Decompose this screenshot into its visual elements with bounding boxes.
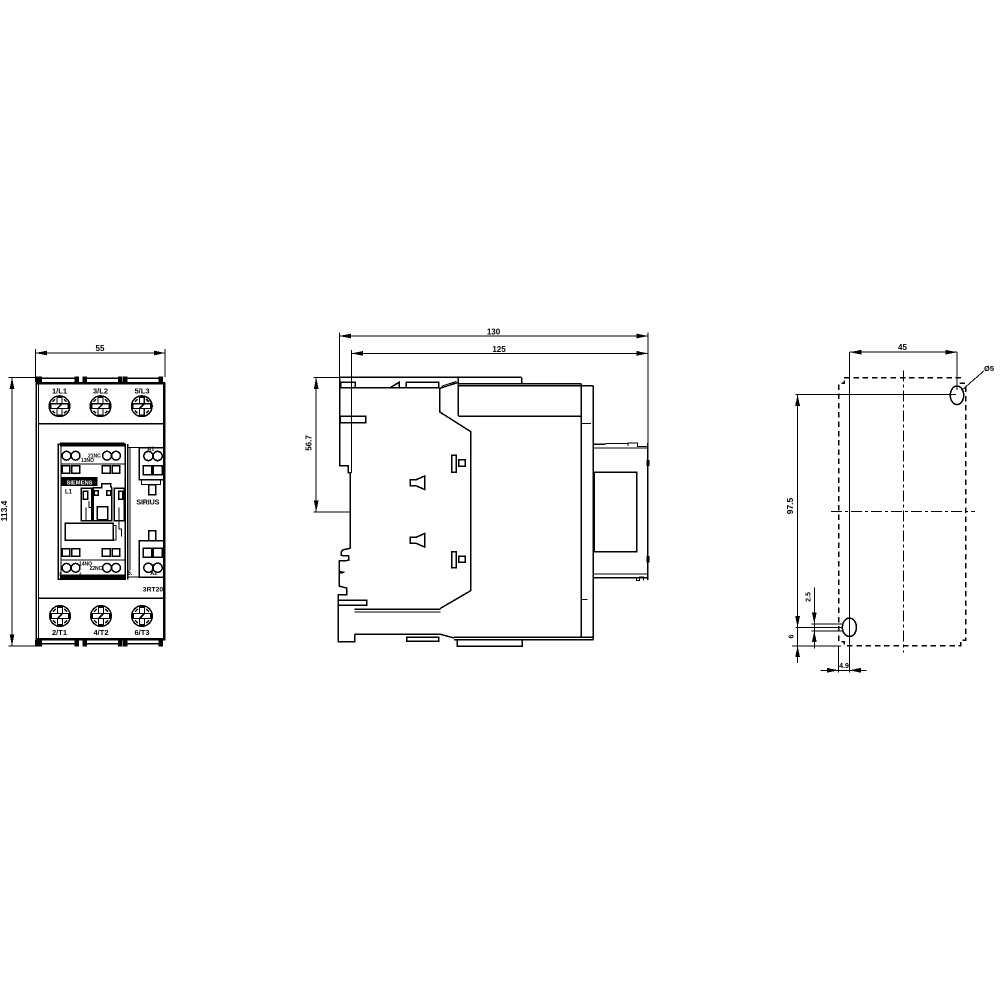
svg-text:3/L2: 3/L2 [93, 387, 108, 396]
svg-text:L1: L1 [65, 489, 73, 495]
svg-text:5/L3: 5/L3 [134, 387, 149, 396]
svg-text:55: 55 [96, 344, 105, 353]
svg-text:130: 130 [487, 328, 501, 337]
svg-text:125: 125 [492, 345, 506, 354]
svg-text:45: 45 [898, 343, 907, 352]
svg-text:2.5: 2.5 [805, 592, 812, 602]
svg-text:3RT20: 3RT20 [143, 586, 164, 593]
svg-text:1/L1: 1/L1 [52, 387, 67, 396]
svg-text:56.7: 56.7 [305, 435, 314, 451]
svg-text:6: 6 [789, 635, 796, 639]
svg-text:113.4: 113.4 [0, 500, 9, 521]
svg-text:4.9: 4.9 [839, 663, 849, 670]
svg-text:6.: 6. [128, 571, 133, 577]
svg-text:2/T1: 2/T1 [52, 628, 67, 637]
svg-text:SIRIUS: SIRIUS [136, 497, 159, 506]
svg-text:22NC: 22NC [90, 566, 103, 572]
svg-text:Ø5: Ø5 [984, 364, 994, 373]
svg-text:4/T2: 4/T2 [93, 628, 108, 637]
svg-text:SIEMENS: SIEMENS [66, 481, 92, 487]
svg-text:13NO: 13NO [81, 458, 94, 464]
svg-text:6/T3: 6/T3 [134, 628, 149, 637]
svg-text:A2: A2 [150, 571, 157, 577]
svg-text:97.5: 97.5 [785, 497, 795, 514]
